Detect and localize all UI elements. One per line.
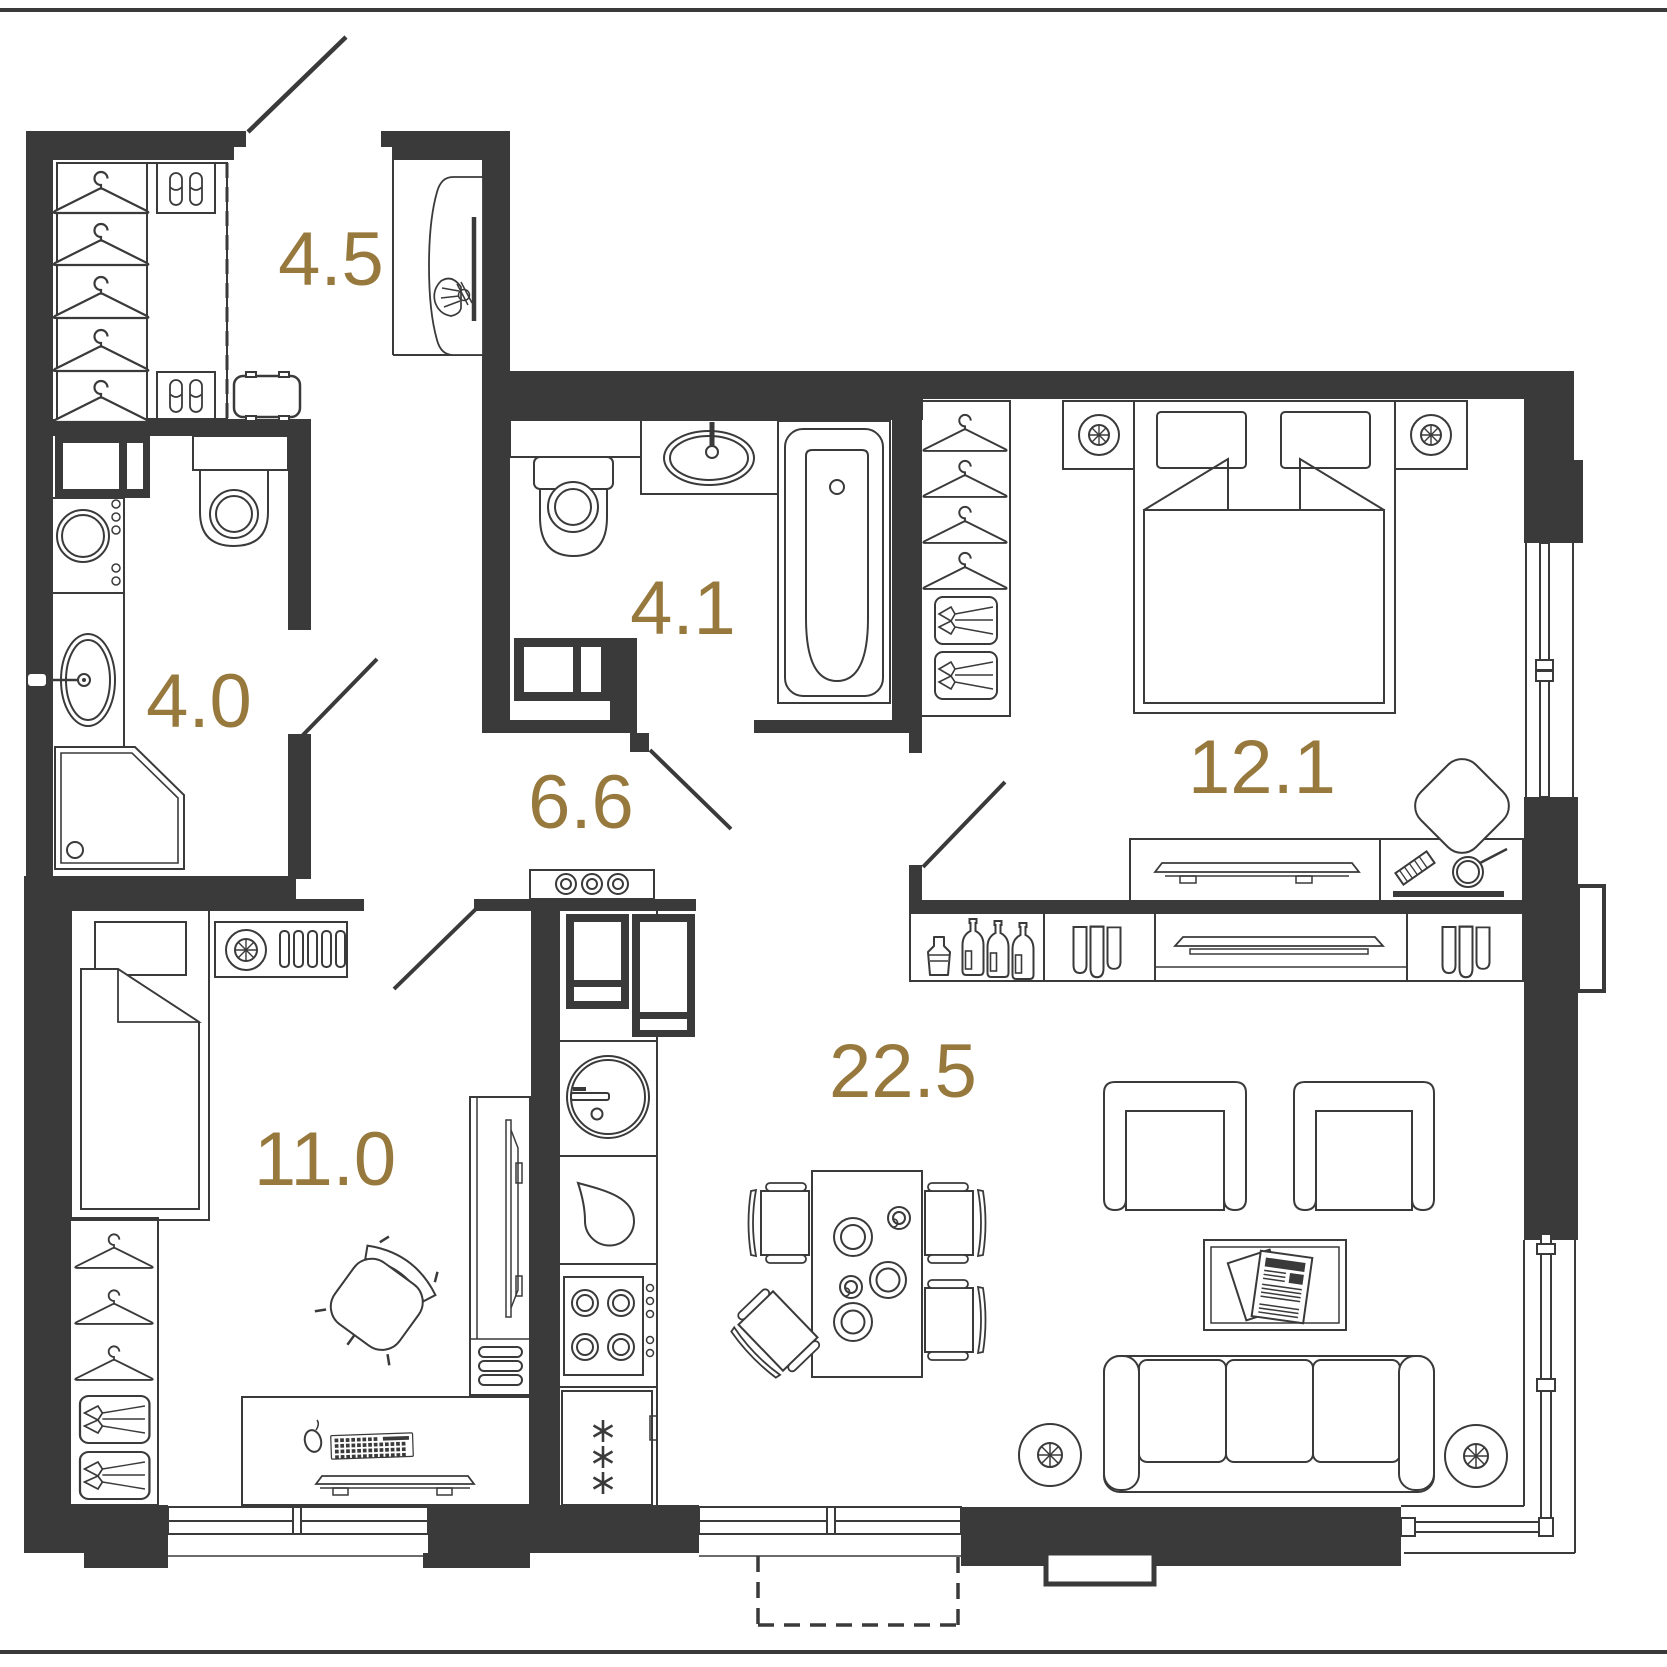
svg-text:22.5: 22.5 (829, 1029, 977, 1114)
svg-text:4.1: 4.1 (630, 566, 736, 651)
svg-text:4.5: 4.5 (278, 217, 384, 302)
svg-text:12.1: 12.1 (1188, 725, 1336, 810)
svg-text:6.6: 6.6 (528, 760, 634, 845)
svg-text:4.0: 4.0 (146, 659, 252, 744)
svg-text:11.0: 11.0 (254, 1117, 396, 1202)
